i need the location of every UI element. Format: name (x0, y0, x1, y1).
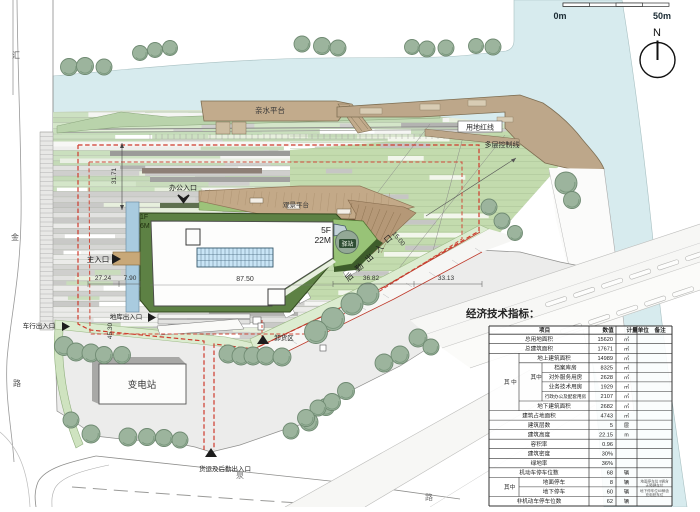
svg-text:5F: 5F (321, 225, 331, 235)
svg-text:办公入口: 办公入口 (169, 183, 197, 192)
svg-text:㎡: ㎡ (624, 335, 630, 343)
svg-text:充电桩车位: 充电桩车位 (646, 492, 664, 497)
svg-text:地库出入口: 地库出入口 (110, 312, 143, 321)
svg-text:50m: 50m (653, 11, 671, 21)
svg-text:对外服务用房: 对外服务用房 (549, 373, 583, 381)
svg-text:36%: 36% (602, 461, 613, 467)
svg-text:㎡: ㎡ (624, 364, 630, 372)
svg-text:31.71: 31.71 (111, 167, 118, 184)
svg-text:用地红线: 用地红线 (466, 123, 494, 132)
svg-text:行政办公及配套用房: 行政办公及配套用房 (545, 393, 587, 400)
svg-text:15620: 15620 (597, 337, 613, 343)
svg-text:备注: 备注 (654, 326, 667, 334)
svg-text:1F: 1F (140, 214, 148, 221)
svg-text:60: 60 (607, 490, 613, 496)
svg-text:泉: 泉 (236, 470, 244, 480)
svg-text:非机动车停车位数: 非机动车停车位数 (517, 497, 562, 505)
svg-text:30%: 30% (602, 452, 613, 458)
svg-text:36.82: 36.82 (363, 275, 380, 282)
svg-text:0.96: 0.96 (602, 442, 613, 448)
svg-text:62: 62 (607, 499, 613, 505)
svg-text:7.90: 7.90 (124, 275, 137, 282)
svg-text:档案库房: 档案库房 (554, 364, 577, 372)
svg-text:地下建筑面积: 地下建筑面积 (537, 402, 571, 410)
svg-text:其 中: 其 中 (504, 378, 517, 386)
svg-text:㎡: ㎡ (624, 411, 630, 419)
svg-text:观景平台: 观景平台 (283, 200, 309, 209)
svg-text:无障碍车位: 无障碍车位 (646, 483, 664, 488)
svg-text:辆: 辆 (624, 497, 629, 505)
svg-text:建筑高度: 建筑高度 (528, 430, 551, 438)
svg-text:地下停车: 地下停车 (543, 488, 566, 496)
svg-text:5: 5 (610, 423, 613, 429)
svg-text:多层控制线: 多层控制线 (485, 140, 520, 149)
svg-text:变电站: 变电站 (128, 379, 157, 391)
svg-text:总建筑面积: 总建筑面积 (525, 345, 553, 353)
svg-text:87.50: 87.50 (236, 276, 254, 283)
svg-text:绿地率: 绿地率 (531, 459, 548, 467)
svg-text:0m: 0m (553, 11, 566, 21)
svg-text:N: N (653, 27, 661, 39)
svg-text:总用地面积: 总用地面积 (525, 335, 553, 343)
svg-text:数值: 数值 (603, 326, 615, 334)
svg-text:金: 金 (11, 232, 19, 242)
svg-text:22M: 22M (314, 235, 331, 245)
svg-text:2107: 2107 (601, 394, 613, 400)
svg-text:主入口: 主入口 (87, 254, 110, 264)
svg-text:路: 路 (425, 492, 433, 502)
svg-text:经济技术指标：: 经济技术指标： (466, 307, 540, 320)
svg-text:容积率: 容积率 (531, 440, 548, 448)
svg-text:1929: 1929 (601, 385, 613, 391)
svg-text:业务技术用房: 业务技术用房 (549, 383, 583, 391)
svg-text:14989: 14989 (597, 356, 613, 362)
svg-text:m: m (624, 432, 628, 438)
svg-text:辆: 辆 (624, 478, 629, 486)
svg-text:驿站: 驿站 (341, 240, 353, 248)
svg-text:27.24: 27.24 (95, 275, 112, 282)
svg-text:辆: 辆 (624, 469, 629, 477)
svg-text:22.15: 22.15 (599, 432, 613, 438)
svg-text:其中: 其中 (531, 373, 543, 381)
svg-text:地上建筑面积: 地上建筑面积 (537, 354, 571, 362)
svg-text:33.13: 33.13 (438, 275, 455, 282)
svg-text:8325: 8325 (601, 366, 613, 372)
svg-text:车行出入口: 车行出入口 (23, 321, 56, 330)
svg-text:地面停车: 地面停车 (543, 478, 566, 486)
svg-text:2682: 2682 (601, 404, 613, 410)
svg-text:8: 8 (610, 480, 613, 486)
svg-text:建筑占地面积: 建筑占地面积 (522, 411, 556, 419)
svg-text:4743: 4743 (601, 413, 613, 419)
svg-text:㎡: ㎡ (624, 383, 630, 391)
svg-text:㎡: ㎡ (624, 402, 630, 410)
svg-text:层: 层 (624, 422, 629, 429)
svg-text:卸货区: 卸货区 (274, 333, 294, 342)
svg-text:45.30: 45.30 (107, 322, 114, 339)
svg-text:㎡: ㎡ (624, 354, 630, 362)
svg-text:机动车停车位数: 机动车停车位数 (519, 469, 559, 477)
svg-text:项目: 项目 (539, 326, 550, 334)
svg-text:汇: 汇 (12, 51, 20, 60)
svg-text:㎡: ㎡ (624, 345, 630, 353)
svg-text:㎡: ㎡ (624, 392, 630, 400)
svg-text:㎡: ㎡ (624, 373, 630, 381)
svg-text:辆: 辆 (624, 488, 629, 496)
svg-text:亲水平台: 亲水平台 (255, 105, 285, 115)
svg-text:17671: 17671 (597, 347, 613, 353)
svg-text:6M: 6M (140, 223, 150, 230)
svg-text:2628: 2628 (601, 375, 613, 381)
svg-text:计量单位: 计量单位 (627, 326, 650, 334)
svg-text:68: 68 (607, 471, 613, 477)
svg-text:建筑密度: 建筑密度 (528, 450, 551, 458)
svg-text:其中: 其中 (504, 483, 516, 491)
svg-text:建筑层数: 建筑层数 (528, 421, 551, 429)
svg-text:路: 路 (13, 378, 21, 388)
